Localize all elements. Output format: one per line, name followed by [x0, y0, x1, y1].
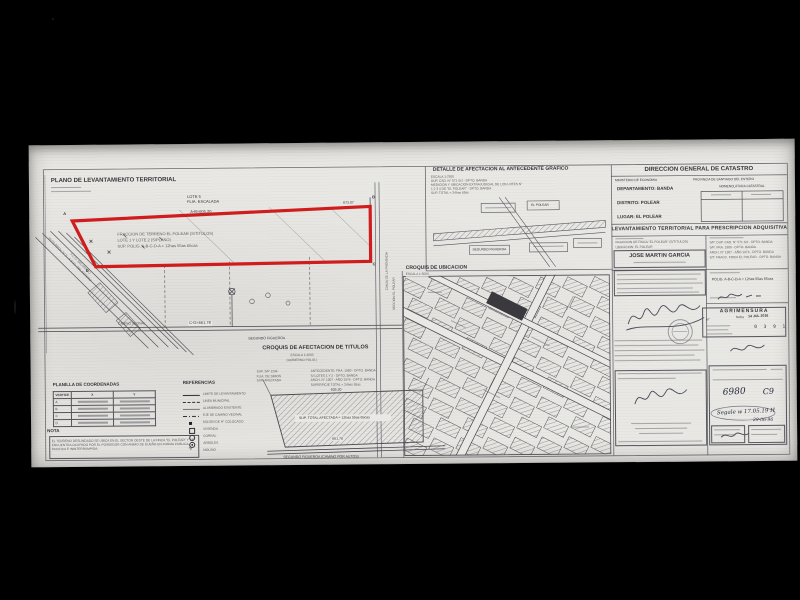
vertex-a-label: A [63, 212, 66, 217]
afectacion-left-note-3: SUP. AFECTADA [257, 379, 282, 383]
departamento-value: DEPARTAMENTO: BANDA [617, 186, 673, 192]
illegible-text-line [51, 187, 81, 189]
dim-ab-label: A-B=605.20 [190, 210, 211, 215]
illegible-text-line [706, 325, 730, 327]
legend-item: LINEA MUNICIPAL [183, 398, 299, 405]
vertex-cell: D [54, 419, 72, 426]
afectacion-title: CROQUIS DE AFECTACION DE TITULOS [262, 344, 368, 351]
illegible-text-line [485, 207, 511, 209]
map-street-label [428, 292, 442, 294]
circle-outline-symbol [183, 434, 200, 439]
afectacion-road-label: SEGUNDO FIGUEROA (CAMINO POR AUTOS) [283, 454, 358, 459]
handwritten-number: 6980 [722, 387, 745, 399]
illegible-text-line [751, 194, 771, 196]
solid-line-symbol [183, 392, 200, 397]
illegible-text-line [714, 434, 736, 436]
canal-label: ZANJA DE LA PROVINCIA [386, 252, 390, 290]
afectacion-right-note-4: SUPERFICIE TOTAL = 24has 65as [311, 383, 361, 387]
handwritten-code: C9 [762, 386, 774, 396]
screenshot-stage: PLANO DE LEVANTAMIENTO TERRITORIAL LOTE … [0, 0, 800, 600]
legend-label: MOJON DE H° COLOCADO [203, 421, 243, 425]
thin-line-symbol [183, 406, 200, 411]
illegible-text-line [751, 429, 781, 431]
legend-label: MOLINO [203, 449, 216, 453]
illegible-text-line [706, 333, 732, 335]
provincia-label: PROVINCIA DE SANTIAGO DEL ESTERO [693, 178, 754, 182]
camino-vecinal-label: CAMINO VECINAL [118, 322, 145, 326]
map-street-label [571, 426, 589, 428]
legend-label: LIMITE DE LEVANTAMIENTO [203, 393, 246, 397]
squiggle-symbol [183, 448, 200, 453]
legend-label: VIVIENDA [203, 428, 218, 432]
dashed-line-symbol [183, 399, 200, 404]
illegible-text-line [771, 369, 783, 370]
fecha-label: fecha [736, 316, 744, 320]
superficie-value: POLIG. A-B-C-D-A = 12has 55as 65cas [712, 277, 773, 282]
filled-square-symbol [183, 420, 200, 425]
scan-speck [14, 300, 16, 314]
handwritten-date: 29-06-96 [753, 418, 773, 423]
camino-vecinal-road [38, 325, 402, 332]
vertex-c-label: C [373, 262, 376, 267]
poseedor-name: JOSE MARTIN GARCIA [614, 252, 706, 259]
legend-item: CORRAL [183, 433, 299, 440]
dash-dot-line-symbol [183, 413, 200, 418]
illegible-text-line [710, 297, 736, 299]
road-name-label: SEGUNDO FIGUEROA [248, 336, 285, 340]
afectacion-subtitle: (GOBIERNO POLIG.) [286, 358, 317, 362]
coordinates-table: VERTICE X Y A B C D [53, 390, 156, 427]
detalle-line-5: SUP. TOTAL = 24has 65as [431, 192, 469, 196]
illegible-text-line [534, 246, 564, 248]
legend-item: EJE DE CAMINO VECINAL [183, 412, 299, 419]
detalle-sketch-label-2: SEGUNDO FIGUEROA [473, 248, 507, 252]
parcel-text-3: SUP. POLIG. A-B-C-D-A = 12has 55as 65cas [117, 244, 197, 249]
dim-offset-label: 673.07 [343, 201, 354, 205]
legend-label: ALAMBRADO EXISTENTE [203, 407, 242, 411]
lot-lines [165, 257, 311, 327]
ubicacion-scale: ESCALA 1:5000 [406, 273, 429, 277]
antecedente-line-4: S/T: FRACC. FINCA EL POLEAR - DPTO. BAND… [710, 256, 781, 260]
table-row: D [54, 419, 156, 427]
illegible-text-line [577, 242, 597, 244]
planilla-title: PLANILLA DE COORDENADAS [53, 382, 120, 388]
referencias-title: REFERENCIAS [183, 380, 215, 385]
registro-number: 0 3 9 1 [754, 325, 787, 330]
section-label: SECCION EL POLEAR [393, 277, 397, 310]
nota-title: NOTA [47, 428, 59, 433]
ministerio-label: MINISTERIO DE ECONOMIA [615, 178, 657, 182]
legend-label: CORRAL [203, 435, 216, 439]
scan-speck [52, 18, 54, 20]
legend-item: LIMITE DE LEVANTAMIENTO [183, 391, 299, 398]
plan-title: PLANO DE LEVANTAMIENTO TERRITORIAL [51, 177, 176, 185]
detalle-sketch [433, 196, 606, 267]
dim-cd-label: C-D=661.78 [188, 321, 212, 326]
scanned-plan-sheet: PLANO DE LEVANTAMIENTO TERRITORIAL LOTE … [29, 139, 798, 468]
afectacion-dim-bottom: 661.78 [331, 437, 344, 441]
illegible-text-line [709, 237, 743, 239]
detalle-sketch-label-1: EL POLEAR [531, 203, 549, 207]
nota-text: EL TERRENO DESLINDADO SE UBICA EN EL SEC… [52, 437, 197, 451]
vertex-b-label: B [372, 195, 375, 200]
nota-box: EL TERRENO DESLINDADO SE UBICA EN EL SEC… [49, 435, 199, 459]
numero-label: N° [706, 318, 710, 322]
legend-label: ARBOLES [203, 442, 218, 446]
nomenclatura-label: NOMENCLATURA CATASTRAL [701, 185, 783, 189]
illegible-text-line [710, 272, 740, 274]
legend-item: ARBOLES [183, 440, 299, 447]
afectacion-inner-label: SUP. TOTAL AFECTADA = 12has 55as 65cas [299, 415, 370, 420]
lugar-value: LUGAR: EL POLEAR [617, 214, 661, 220]
objeto-line-2: UBICACION: EL POLEAR [616, 245, 653, 249]
illegible-text-line [714, 429, 740, 431]
square-outline-symbol [183, 427, 200, 432]
legend-label: EJE DE CAMINO VECINAL [203, 414, 242, 418]
legend-item: MOLINO [183, 447, 299, 454]
legend-item: ALAMBRADO EXISTENTE [183, 405, 299, 412]
ubicacion-title: CROQUIS DE UBICACION [406, 266, 467, 272]
tree-icons [250, 293, 290, 306]
legend-item: MOJON DE H° COLOCADO [183, 419, 299, 426]
familia-label: FLIA. ESCALADA [187, 200, 219, 205]
detalle-title: DETALLE DE AFECTACION AL ANTECEDENTE GRA… [433, 167, 569, 174]
illegible-text-line [751, 434, 777, 436]
illegible-text-line [711, 194, 731, 196]
afectacion-dim-top: 605.20 [331, 388, 342, 392]
legend-item: VIVIENDA [183, 426, 299, 433]
legend-label: LINEA MUNICIPAL [203, 400, 230, 404]
professional-signature-box [615, 369, 708, 446]
distrito-value: DISTRITO: POLEAR [617, 200, 659, 206]
illegible-text-line [706, 329, 728, 331]
windmill-icon [229, 288, 236, 326]
